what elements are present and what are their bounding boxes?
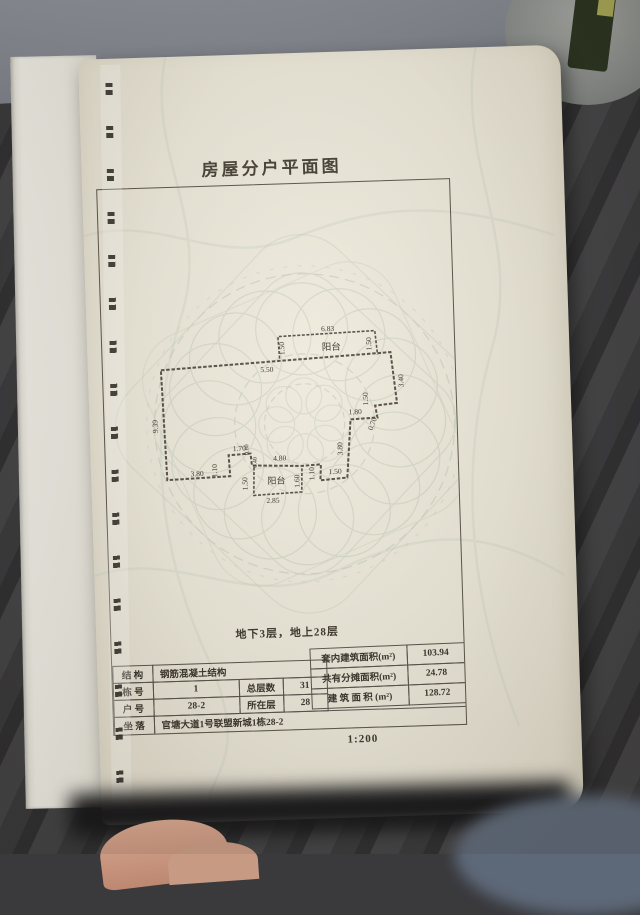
dimension-label: 3.40 [396, 374, 405, 388]
dimension-label: 1.50 [277, 342, 286, 356]
dimension-label: 2.85 [266, 496, 280, 505]
dimension-label: 0.60 [244, 444, 250, 455]
unit-info-table: 结 构 钢筋混凝土结构 栋 号 1 总层数 31 户 号 28-2 所在层 28 [112, 659, 327, 717]
balcony-top-label: 阳台 [322, 341, 341, 354]
dimension-label: 6.83 [321, 324, 335, 333]
dimension-label: 4.80 [273, 453, 287, 462]
chair-pole-highlight [597, 0, 615, 17]
dimension-label: 3.80 [190, 469, 204, 478]
dimension-label: 1.50 [240, 477, 249, 491]
area-table: 套内建筑面积(m²) 103.94 共有分摊面积(m²) 24.78 建 筑 面… [309, 642, 466, 708]
dimension-label: 1.10 [210, 464, 219, 478]
total-area-value: 128.72 [407, 682, 467, 705]
dimension-label: 1.80 [349, 407, 363, 416]
unit-outline [161, 352, 400, 485]
dimension-label: 3.80 [335, 442, 344, 456]
scale-label: 1:200 [347, 733, 378, 746]
dimension-label: 5.50 [260, 365, 274, 374]
floor-plan-drawing: 6.83 阳台 1.50 1.50 5.50 3.40 1.50 1.80 0.… [148, 319, 454, 523]
dimension-label: 0.40 [253, 457, 259, 468]
dimension-label: 1.50 [364, 337, 373, 351]
dimension-label: 1.60 [292, 474, 301, 488]
total-area-label: 建 筑 面 积 (m²) [311, 684, 410, 709]
plan-border-box: 6.83 阳台 1.50 1.50 5.50 3.40 1.50 1.80 0.… [96, 178, 467, 736]
balcony-bottom-label: 阳台 [267, 474, 285, 486]
dimension-label: 1.10 [307, 467, 316, 481]
dimension-label: 1.50 [328, 467, 342, 476]
dimension-label: 9.39 [150, 420, 159, 434]
dimension-label: 1.50 [361, 392, 370, 406]
document-page: 房屋分户平面图 [78, 45, 584, 826]
